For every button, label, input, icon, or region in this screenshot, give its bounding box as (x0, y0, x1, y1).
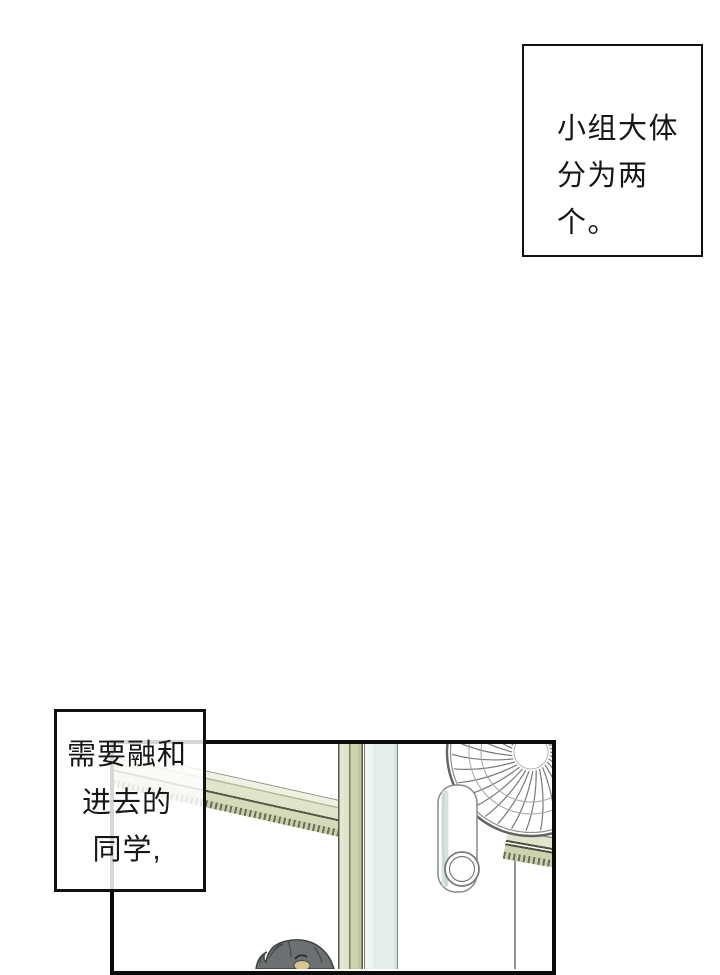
hanging-handle (438, 785, 479, 892)
caption-line: 需要融和 (57, 732, 197, 780)
caption-line: 同学, (57, 827, 197, 875)
caption-line: 进去的 (57, 780, 197, 828)
handle-ring-inner (450, 857, 475, 882)
caption-line: 小组大体 (557, 106, 701, 153)
caption-line: 分为两个。 (557, 153, 701, 247)
student-head (256, 940, 334, 969)
caption-box-left: 需要融和 进去的 同学, (54, 709, 206, 892)
face-patch (294, 961, 310, 970)
comic-page: { "page": { "background": "#ffffff" }, "… (0, 0, 720, 969)
caption-box-top-right: 小组大体 分为两个。 (522, 44, 703, 257)
